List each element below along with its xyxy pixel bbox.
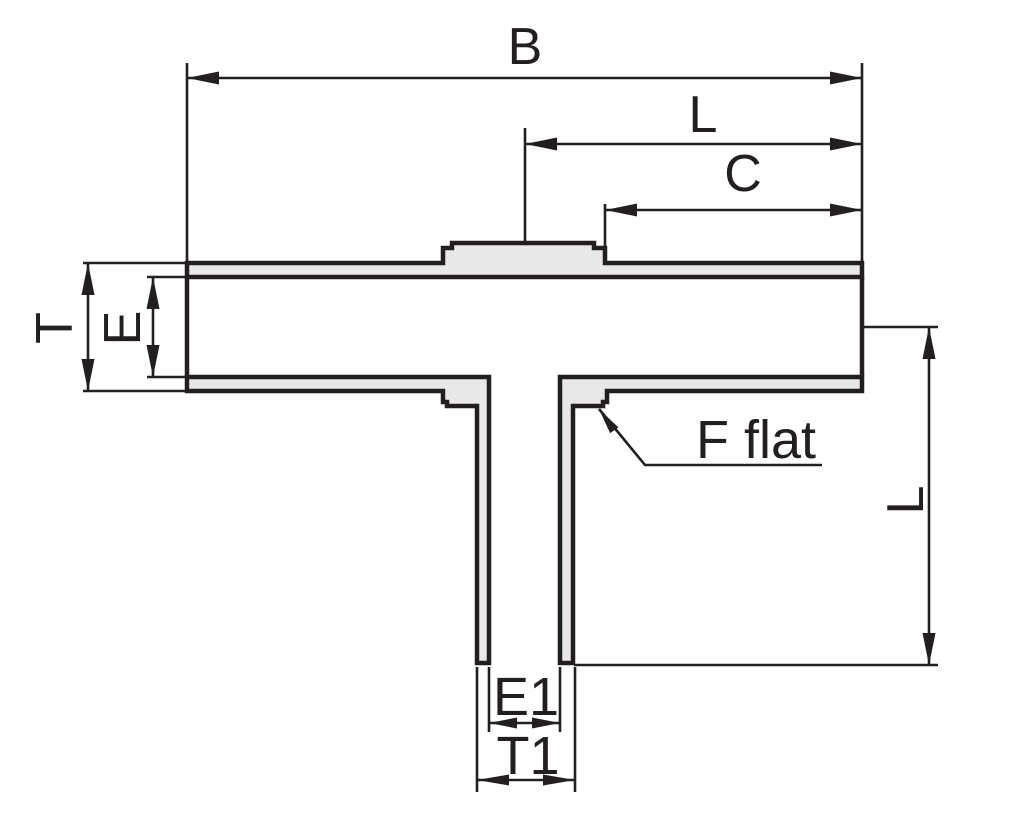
dimension-e1: E1 <box>489 667 560 732</box>
dim-l-right-arrow-bottom <box>923 633 936 665</box>
f-flat-label: F flat <box>696 410 816 470</box>
dim-c-label: C <box>724 145 762 203</box>
dim-e1-label: E1 <box>493 667 559 727</box>
dimension-c: C <box>605 145 862 247</box>
dim-b-arrow-left <box>187 72 219 85</box>
dim-t1-label: T1 <box>496 726 559 786</box>
dimension-e: E <box>94 277 192 377</box>
dim-b-label: B <box>508 18 543 76</box>
dimension-l-top: L <box>525 86 862 242</box>
dim-e-label: E <box>94 311 152 346</box>
dim-c-arrow-left <box>605 204 637 217</box>
dim-t-arrow-top <box>82 263 95 295</box>
dim-e-arrow-top <box>147 277 160 309</box>
top-wall-with-boss <box>187 243 862 277</box>
dim-l-top-arrow-left <box>525 138 557 151</box>
dim-t-arrow-bottom <box>82 359 95 391</box>
dim-b-arrow-right <box>830 72 862 85</box>
bottom-left-wall-and-branch <box>187 377 489 663</box>
dim-c-arrow-right <box>830 204 862 217</box>
drawing-canvas: B L C T <box>0 0 1024 816</box>
callout-f-flat: F flat <box>599 409 822 470</box>
dim-e-arrow-bottom <box>147 345 160 377</box>
tee-diagram-svg: B L C T <box>0 0 1024 816</box>
dim-l-top-label: L <box>689 86 718 144</box>
dim-l-top-arrow-right <box>830 138 862 151</box>
dim-t-label: T <box>26 312 84 344</box>
dim-l-right-arrow-top <box>923 327 936 359</box>
dim-l-right-label: L <box>877 486 935 515</box>
